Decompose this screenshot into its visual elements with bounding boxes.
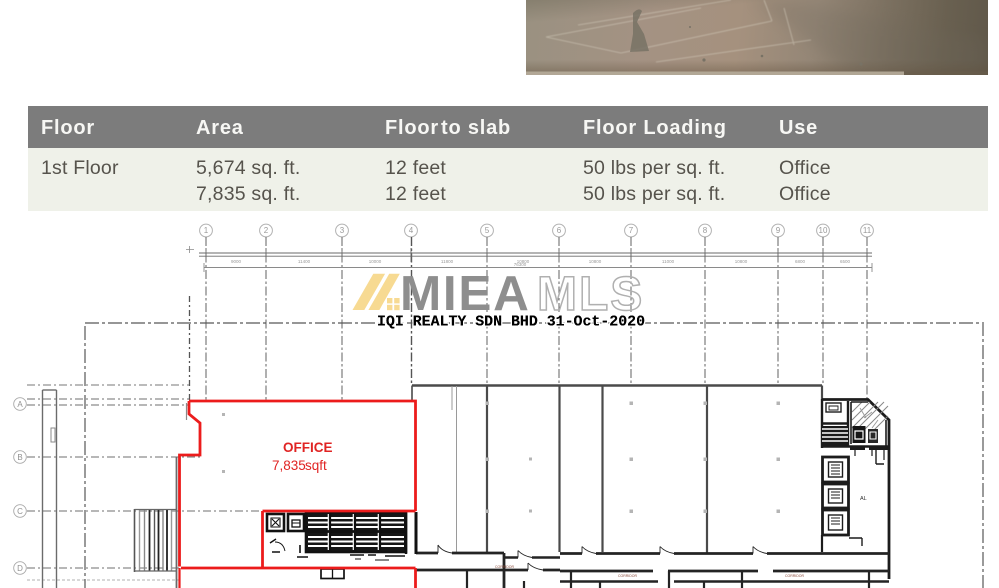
svg-text:6800: 6800 bbox=[795, 259, 806, 264]
svg-text:CORRIDOR: CORRIDOR bbox=[618, 574, 638, 578]
svg-text:9000: 9000 bbox=[231, 259, 242, 264]
svg-text:CORRIDOR: CORRIDOR bbox=[785, 574, 805, 578]
svg-text:AL: AL bbox=[860, 496, 867, 502]
svg-text:11800: 11800 bbox=[441, 259, 454, 264]
svg-text:C: C bbox=[17, 507, 23, 516]
svg-text:3: 3 bbox=[340, 226, 345, 235]
svg-text:4: 4 bbox=[409, 226, 414, 235]
svg-text:11: 11 bbox=[863, 226, 872, 235]
svg-text:1: 1 bbox=[204, 226, 209, 235]
svg-text:10800: 10800 bbox=[589, 259, 602, 264]
svg-text:sqft: sqft bbox=[305, 458, 327, 473]
svg-text:10000: 10000 bbox=[369, 259, 382, 264]
svg-text:7: 7 bbox=[629, 226, 634, 235]
svg-text:11000: 11000 bbox=[662, 259, 675, 264]
svg-text:11400: 11400 bbox=[298, 259, 311, 264]
svg-text:A: A bbox=[17, 400, 23, 409]
svg-text:9: 9 bbox=[776, 226, 781, 235]
svg-text:D: D bbox=[17, 564, 23, 573]
svg-text:IQI REALTY SDN BHD 31-Oct-2020: IQI REALTY SDN BHD 31-Oct-2020 bbox=[377, 315, 645, 331]
svg-text:10: 10 bbox=[819, 226, 828, 235]
svg-text:7,835: 7,835 bbox=[272, 458, 306, 473]
svg-text:MLS: MLS bbox=[537, 268, 644, 321]
svg-text:OFFICE: OFFICE bbox=[283, 440, 333, 455]
svg-text:CORRIDOR: CORRIDOR bbox=[495, 565, 515, 569]
svg-text:6: 6 bbox=[557, 226, 562, 235]
svg-text:MIEA: MIEA bbox=[400, 266, 531, 321]
svg-text:B: B bbox=[17, 453, 22, 462]
svg-text:5: 5 bbox=[485, 226, 490, 235]
svg-text:2: 2 bbox=[264, 226, 269, 235]
svg-text:8: 8 bbox=[703, 226, 708, 235]
svg-text:6500: 6500 bbox=[840, 259, 851, 264]
svg-text:10800: 10800 bbox=[735, 259, 748, 264]
